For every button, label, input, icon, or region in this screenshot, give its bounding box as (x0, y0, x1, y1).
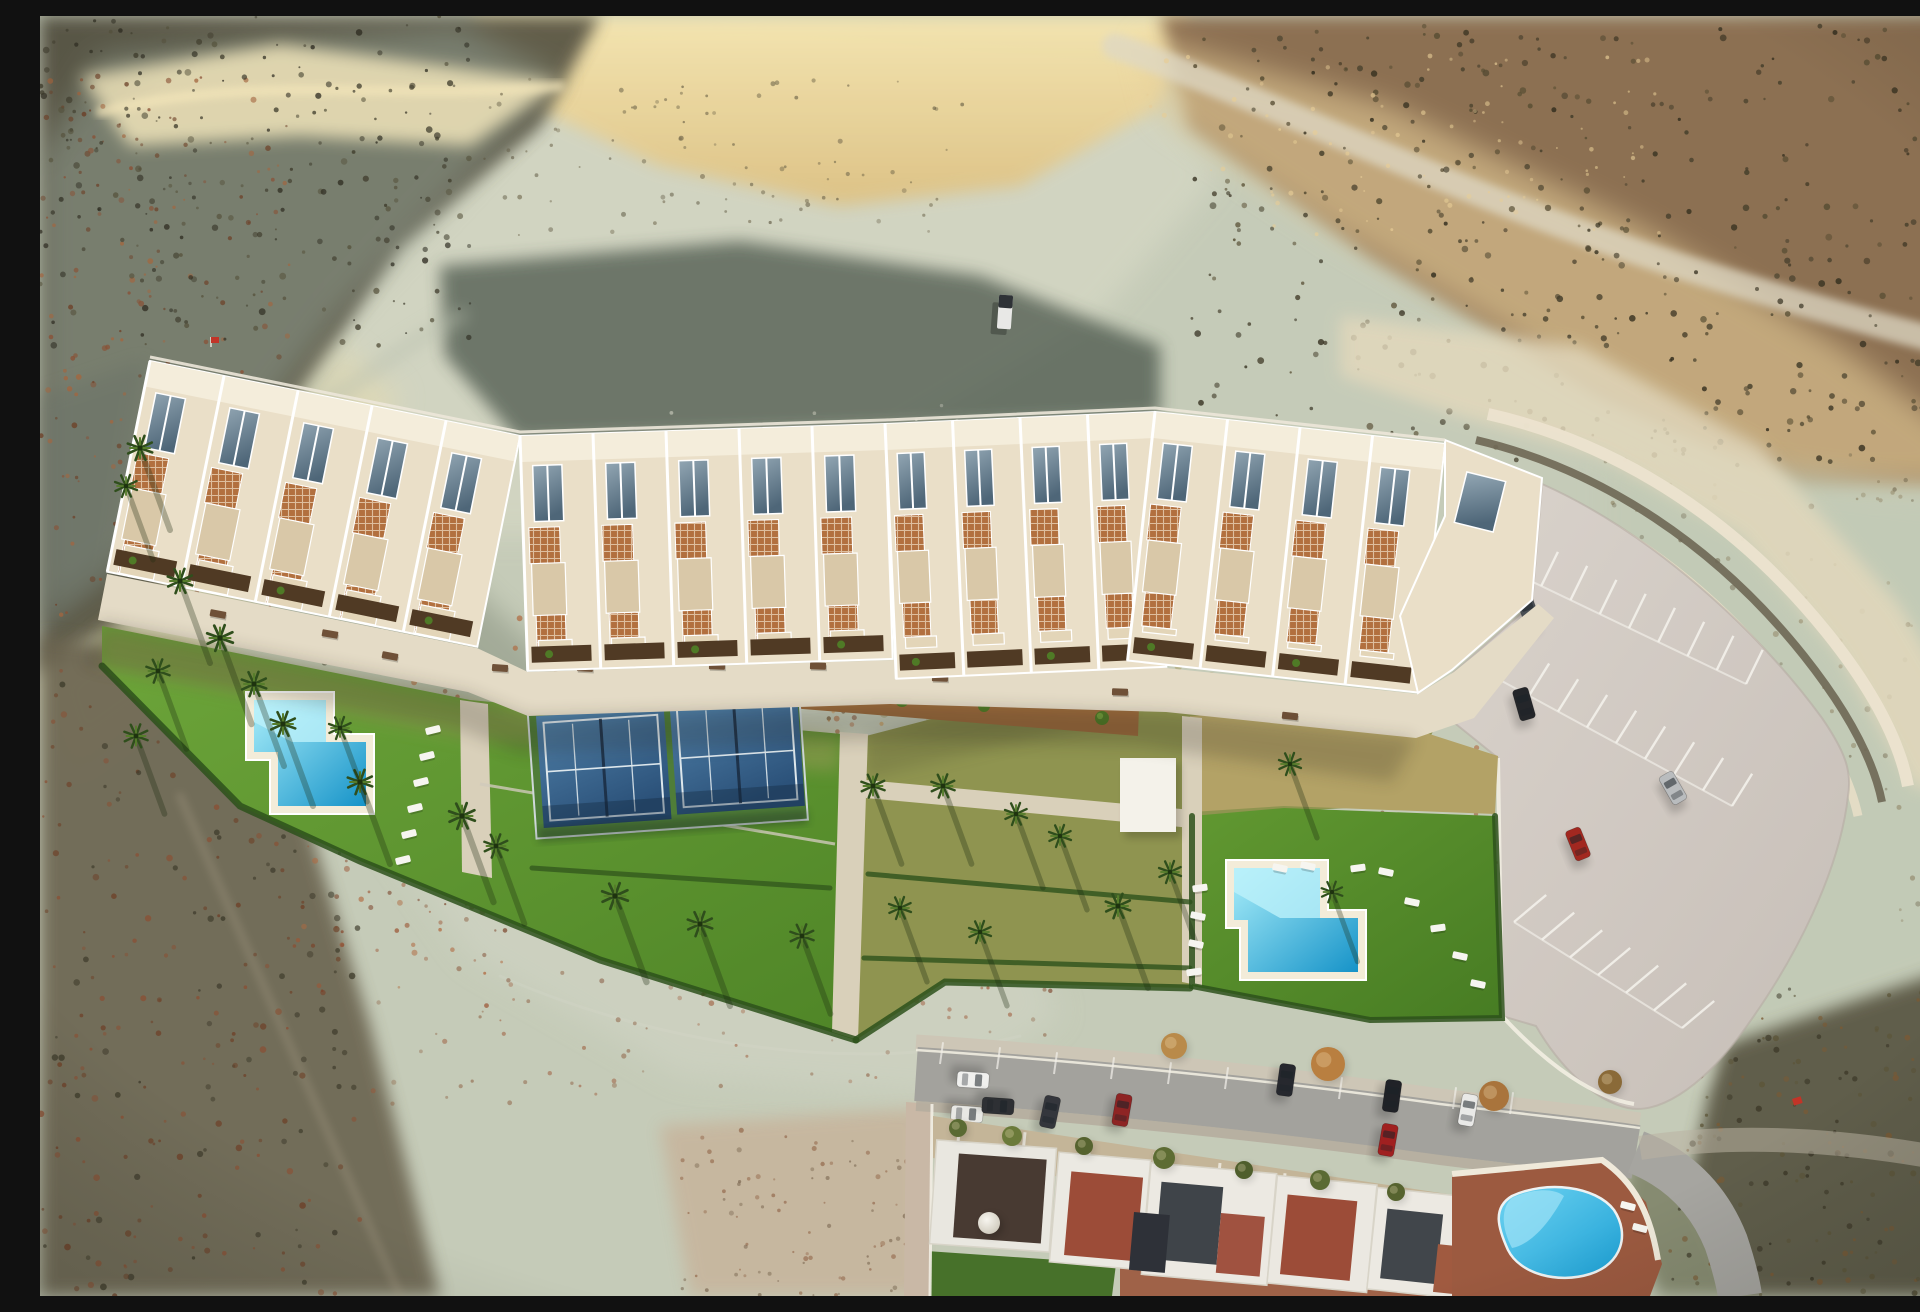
vignette (40, 16, 1920, 1296)
aerial-render-canvas (40, 16, 1920, 1296)
aerial-photo (40, 16, 1920, 1296)
